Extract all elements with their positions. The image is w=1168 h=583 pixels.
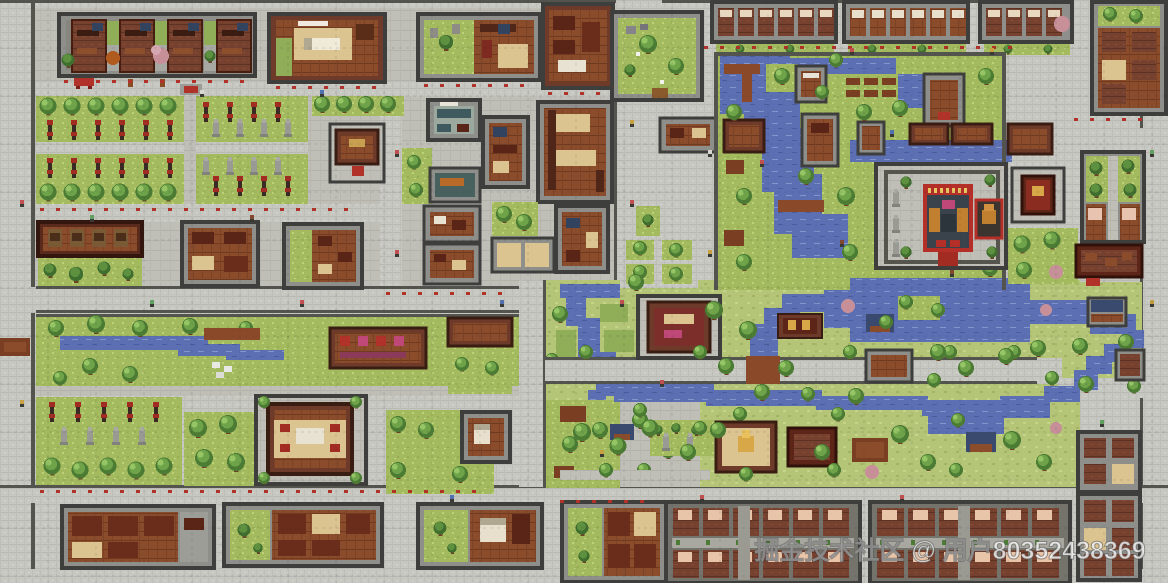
svg-text:掘金技术社区 @ 用户80352438369: 掘金技术社区 @ 用户80352438369: [754, 536, 1145, 565]
